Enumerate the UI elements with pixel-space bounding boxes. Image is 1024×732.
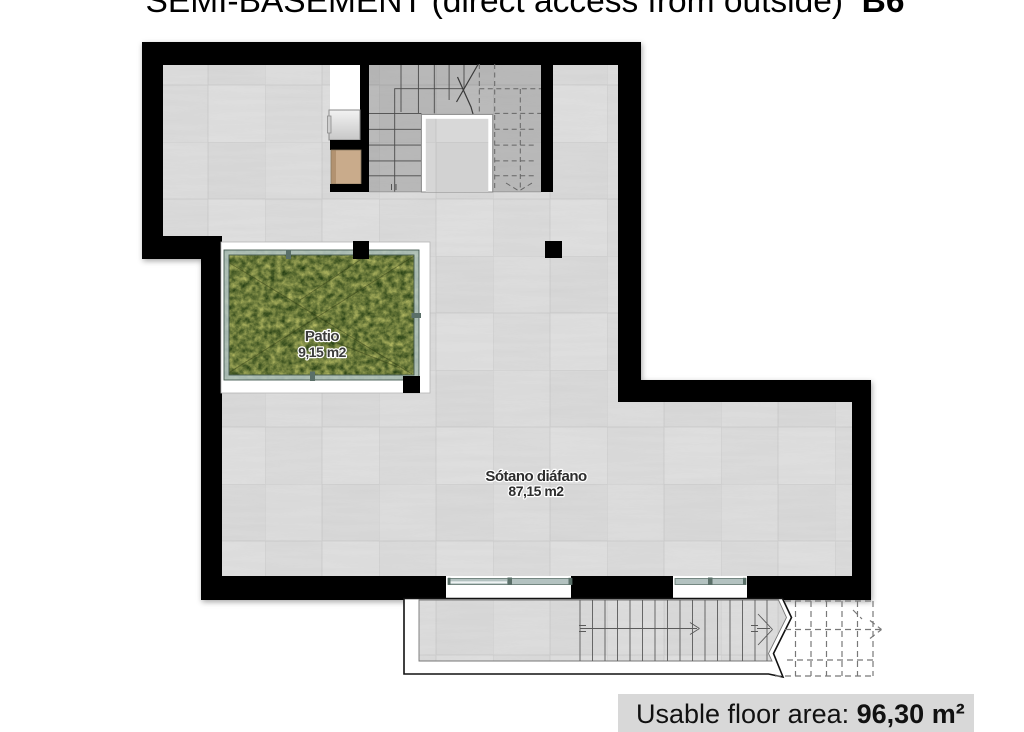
svg-text:Usable floor area: 96,30 m²: Usable floor area: 96,30 m² <box>636 699 965 729</box>
svg-text:SEMI-BASEMENT (direct access f: SEMI-BASEMENT (direct access from outsid… <box>146 0 905 20</box>
svg-text:Patio: Patio <box>305 328 340 345</box>
svg-text:9,15 m2: 9,15 m2 <box>298 344 347 360</box>
svg-text:87,15 m2: 87,15 m2 <box>508 483 564 499</box>
